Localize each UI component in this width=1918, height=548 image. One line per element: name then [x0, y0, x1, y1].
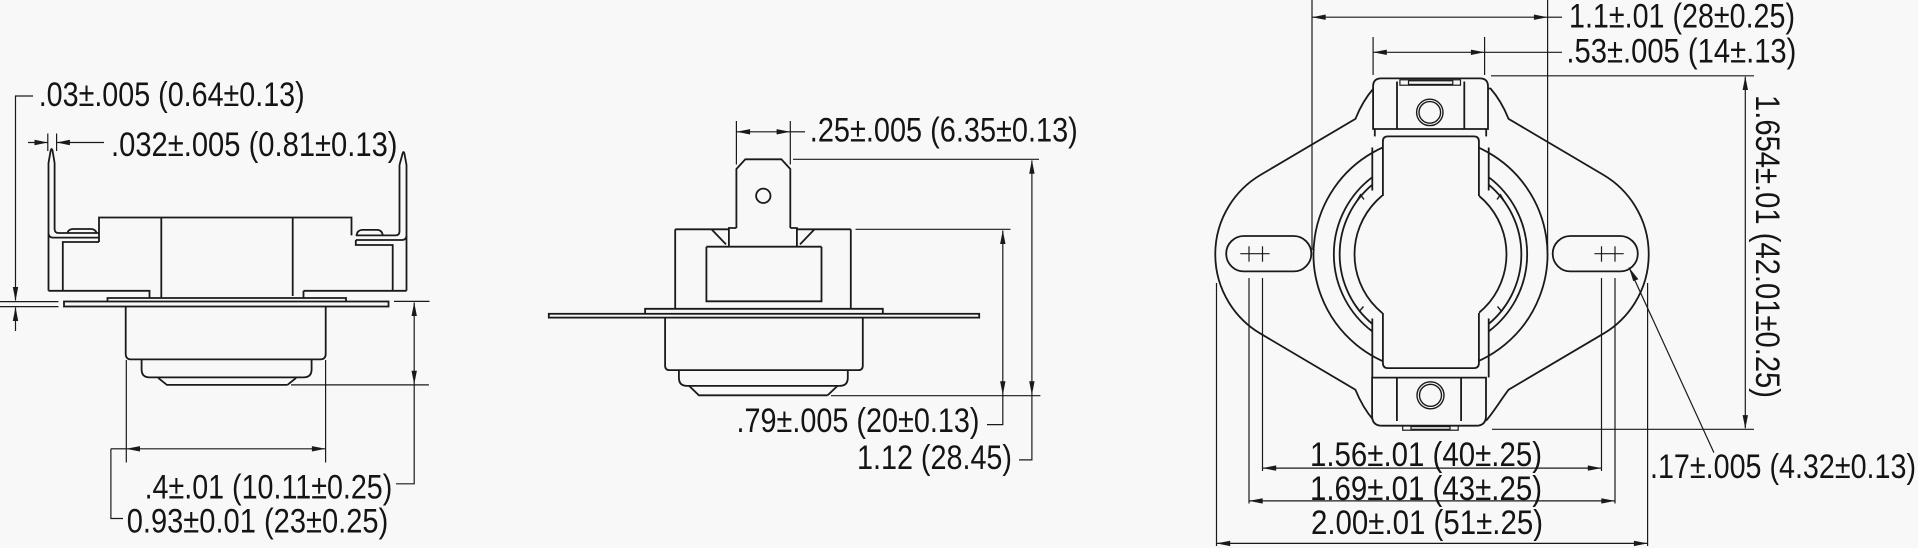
svg-text:.03±.005 (0.64±0.13): .03±.005 (0.64±0.13): [39, 76, 305, 114]
svg-text:1.654±.01 (42.01±0.25): 1.654±.01 (42.01±0.25): [1748, 95, 1786, 398]
svg-text:0.93±0.01 (23±0.25): 0.93±0.01 (23±0.25): [127, 502, 389, 540]
svg-text:.79±.005 (20±0.13): .79±.005 (20±0.13): [737, 402, 980, 440]
svg-text:2.00±.01 (51±.25): 2.00±.01 (51±.25): [1311, 504, 1543, 542]
svg-text:.17±.005 (4.32±0.13): .17±.005 (4.32±0.13): [1650, 448, 1916, 486]
svg-text:.032±.005 (0.81±0.13): .032±.005 (0.81±0.13): [111, 126, 398, 164]
svg-text:.4±.01 (10.11±0.25): .4±.01 (10.11±0.25): [145, 469, 393, 507]
svg-text:1.1±.01 (28±0.25): 1.1±.01 (28±0.25): [1569, 0, 1795, 35]
svg-text:.53±.005 (14±.13): .53±.005 (14±.13): [1566, 33, 1796, 71]
svg-text:.25±.005 (6.35±0.13): .25±.005 (6.35±0.13): [810, 112, 1078, 150]
svg-text:1.56±.01 (40±.25): 1.56±.01 (40±.25): [1310, 436, 1542, 474]
svg-text:1.69±.01 (43±.25): 1.69±.01 (43±.25): [1310, 470, 1542, 508]
svg-text:1.12 (28.45): 1.12 (28.45): [857, 439, 1012, 477]
